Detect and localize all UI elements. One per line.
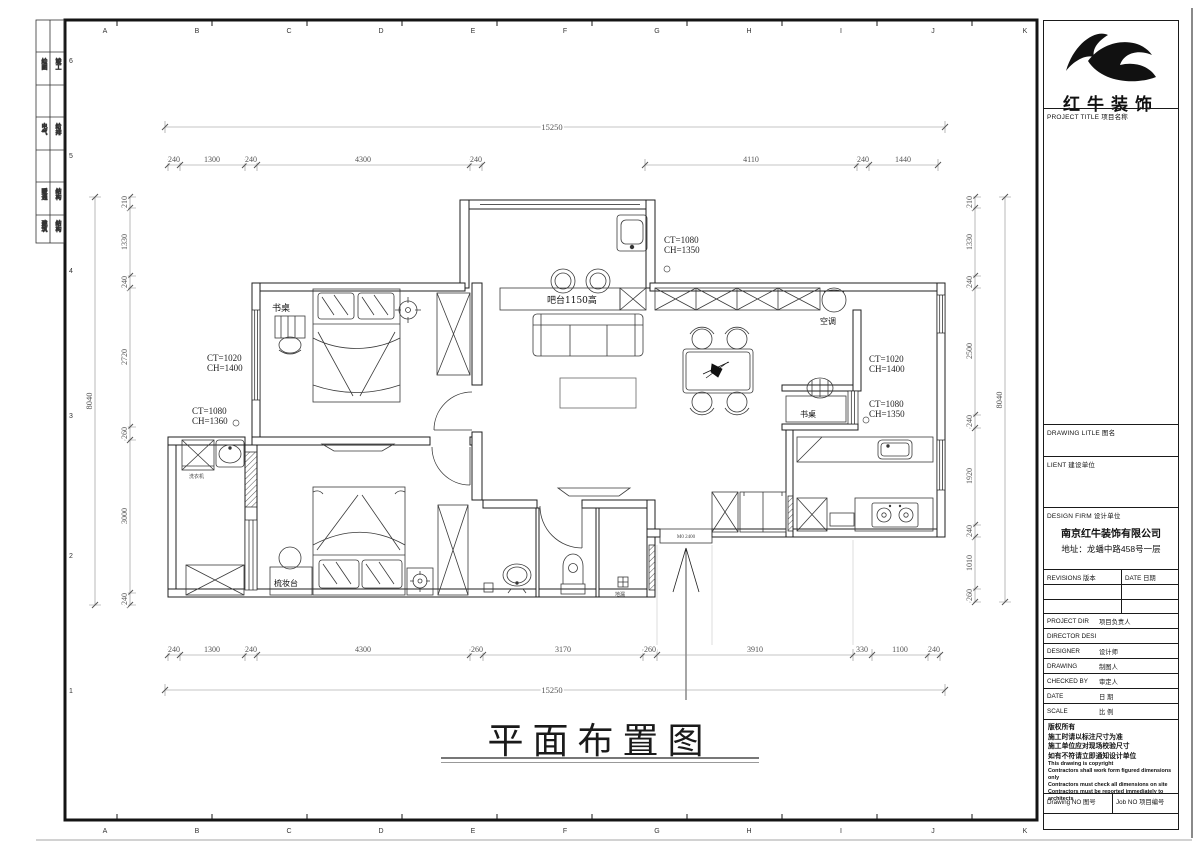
svg-text:暖通: 暖通 [40, 187, 47, 201]
desk-bedroom1 [275, 316, 305, 354]
row-checked-by: CHECKED BY审定人 [1044, 673, 1178, 689]
svg-text:C: C [286, 828, 291, 835]
room-labels: 书桌 吧台1150高 空调 书桌 梳妆台 洗衣机 地漏 M0 2400 [189, 294, 836, 598]
svg-text:结构: 结构 [54, 187, 61, 201]
svg-text:CH=1360: CH=1360 [192, 416, 228, 426]
svg-text:2720: 2720 [120, 349, 129, 365]
dim-bottom-total: 15250 [541, 685, 562, 695]
title-underline-2 [441, 762, 759, 763]
row-director: DIRECTOR DESI [1044, 628, 1178, 644]
svg-text:C: C [286, 28, 291, 35]
svg-text:CT=1080: CT=1080 [869, 399, 904, 409]
svg-text:CT=1080: CT=1080 [664, 235, 699, 245]
ruler-letter: A [103, 28, 108, 35]
svg-text:3: 3 [69, 413, 73, 420]
svg-text:J: J [931, 28, 935, 35]
svg-text:6: 6 [69, 58, 73, 65]
svg-text:4300: 4300 [355, 645, 371, 654]
svg-text:CT=1080: CT=1080 [192, 406, 227, 416]
svg-text:CT=1020: CT=1020 [869, 354, 904, 364]
label-floor-drain: 地漏 [615, 591, 625, 598]
dim-top-total: 15250 [541, 122, 562, 132]
door-bedroom2 [432, 447, 470, 485]
svg-text:240: 240 [965, 525, 974, 537]
svg-text:电气: 电气 [40, 122, 47, 135]
svg-text:240: 240 [245, 155, 257, 164]
revisions-label: REVISIONS 版本 [1047, 573, 1096, 582]
design-firm-label: DESIGN FIRM 设计单位 [1044, 508, 1178, 520]
label-entry-mark: M0 2400 [677, 535, 696, 540]
svg-text:CH=1400: CH=1400 [207, 363, 243, 373]
svg-text:260: 260 [471, 645, 483, 654]
svg-text:240: 240 [928, 645, 940, 654]
svg-text:结构: 结构 [54, 219, 61, 233]
svg-text:1330: 1330 [120, 234, 129, 250]
svg-text:2: 2 [69, 553, 73, 560]
svg-text:I: I [840, 828, 842, 835]
svg-text:3910: 3910 [747, 645, 763, 654]
svg-text:1100: 1100 [892, 645, 908, 654]
table-centerpiece [703, 362, 729, 378]
kitchen-pier-hatch [788, 496, 793, 531]
svg-text:260: 260 [644, 645, 656, 654]
margin-strip: 绘图 竣工 电气 给排 暖通 结构 建筑 结构 [36, 20, 64, 243]
svg-text:1920: 1920 [965, 468, 974, 484]
svg-text:1010: 1010 [965, 555, 974, 571]
row-project-dir: PROJECT DIR项目负责人 [1044, 613, 1178, 629]
title-block: 红牛装饰 PROJECT TITLE 项目名称 DRAWING LITLE 图名… [1043, 20, 1179, 830]
svg-text:240: 240 [120, 593, 129, 605]
title-underline [441, 757, 759, 759]
toilet [561, 554, 585, 594]
svg-text:240: 240 [168, 645, 180, 654]
svg-text:260: 260 [965, 589, 974, 601]
wardrobe-bedroom2 [438, 505, 468, 595]
svg-text:建筑: 建筑 [40, 219, 47, 233]
dining-chair [725, 392, 749, 415]
svg-text:3170: 3170 [555, 645, 571, 654]
svg-text:1: 1 [69, 688, 73, 695]
logo-area: 红牛装饰 [1044, 21, 1178, 108]
margin-cell-text: 绘图 [40, 57, 47, 71]
svg-text:240: 240 [168, 155, 180, 164]
svg-text:E: E [471, 28, 476, 35]
wardrobe-bedroom1 [437, 293, 470, 375]
firm-address: 地址：龙蟠中路458号一层 [1044, 543, 1178, 555]
svg-text:B: B [195, 28, 200, 35]
label-desk-study: 书桌 [800, 409, 816, 419]
svg-text:H: H [746, 828, 751, 835]
svg-text:3000: 3000 [120, 508, 129, 524]
entry-pier-hatch [649, 545, 655, 590]
svg-text:1300: 1300 [204, 155, 220, 164]
svg-text:K: K [1023, 828, 1028, 835]
window-kitchen-east [937, 440, 945, 490]
svg-text:竣工: 竣工 [54, 57, 61, 70]
svg-text:210: 210 [965, 196, 974, 208]
drawing-title-label: DRAWING LITLE 图名 [1044, 424, 1178, 439]
svg-text:330: 330 [856, 645, 868, 654]
sink-bay [617, 215, 647, 251]
svg-text:F: F [563, 28, 567, 35]
bed-double-bedroom2 [313, 487, 405, 595]
design-firm-section: DESIGN FIRM 设计单位 南京红牛装饰有限公司 地址：龙蟠中路458号一… [1044, 507, 1178, 570]
air-conditioner [822, 288, 846, 312]
svg-text:1330: 1330 [965, 234, 974, 250]
dining-chair [725, 327, 749, 349]
floor-plan-sheet: A B C D E F G H I J K A B C D E F G H I … [0, 0, 1200, 844]
drawing-no-label: Drawing NO 图号 [1047, 797, 1096, 806]
svg-text:260: 260 [120, 427, 129, 439]
dining-table [683, 327, 753, 415]
row-drawing: DRAWING制图人 [1044, 658, 1178, 674]
firm-name: 南京红牛装饰有限公司 [1044, 525, 1178, 540]
window-living-east [937, 295, 945, 333]
entry-arrow [673, 548, 699, 700]
svg-text:240: 240 [470, 155, 482, 164]
label-desk-bedroom: 书桌 [272, 302, 290, 314]
svg-text:F: F [563, 828, 567, 835]
label-bar: 吧台1150高 [547, 294, 597, 306]
svg-text:4110: 4110 [743, 155, 759, 164]
svg-text:H: H [746, 28, 751, 35]
svg-text:240: 240 [245, 645, 257, 654]
door-bathroom [540, 506, 582, 548]
svg-text:240: 240 [120, 276, 129, 288]
svg-text:240: 240 [965, 415, 974, 427]
title-block-footer [1044, 813, 1178, 830]
svg-text:G: G [654, 28, 659, 35]
label-dresser: 梳妆台 [274, 578, 298, 588]
row-designer: DESIGNER设计师 [1044, 643, 1178, 659]
walls [168, 200, 945, 597]
svg-text:240: 240 [965, 276, 974, 288]
shower-drain [618, 577, 628, 587]
door-bedroom1 [434, 392, 472, 430]
svg-text:K: K [1023, 28, 1028, 35]
refrigerator [740, 492, 786, 532]
svg-text:G: G [654, 828, 659, 835]
svg-text:CH=1400: CH=1400 [869, 364, 905, 374]
window-bedroom1-west [252, 310, 260, 400]
job-no-label: Job NO 项目编号 [1116, 797, 1164, 806]
gas-stove [872, 503, 918, 527]
project-title-label: PROJECT TITLE 项目名称 [1044, 108, 1178, 123]
svg-text:J: J [931, 828, 935, 835]
copyright-block: 版权所有 施工时请以标注尺寸为准 施工单位应对现场校验尺寸 如有不符请立即通知设… [1044, 719, 1178, 794]
date-col-label: DATE 日期 [1125, 573, 1156, 582]
row-date: DATE日 期 [1044, 688, 1178, 704]
revision-row [1044, 599, 1178, 614]
ceiling-light-bar-bathroom [558, 488, 630, 496]
window-tag: CT=1020 [207, 353, 242, 363]
svg-text:B: B [195, 828, 200, 835]
window-study [848, 391, 858, 424]
svg-text:2500: 2500 [965, 343, 974, 359]
label-washer: 洗衣机 [189, 473, 204, 480]
svg-text:CH=1350: CH=1350 [664, 245, 700, 255]
dining-chair [690, 327, 714, 349]
svg-text:I: I [840, 28, 842, 35]
row-scale: SCALE比 例 [1044, 703, 1178, 719]
dining-chair [690, 392, 714, 415]
bed-double-bedroom1 [313, 289, 400, 402]
svg-text:210: 210 [120, 196, 129, 208]
revisions-header: REVISIONS 版本 DATE 日期 [1044, 569, 1178, 585]
ceiling-lamp-bedroom1 [395, 297, 421, 323]
svg-text:4: 4 [69, 268, 73, 275]
svg-text:8040: 8040 [994, 392, 1004, 409]
svg-text:D: D [378, 28, 383, 35]
svg-text:1440: 1440 [895, 155, 911, 164]
svg-text:5: 5 [69, 153, 73, 160]
rednow-logo-icon [1044, 21, 1176, 83]
svg-text:1300: 1300 [204, 645, 220, 654]
kitchen-base-cabinet [797, 498, 854, 531]
svg-text:8040: 8040 [84, 393, 94, 410]
svg-text:D: D [378, 828, 383, 835]
client-label: LIENT 建设单位 [1044, 456, 1178, 471]
svg-text:E: E [471, 828, 476, 835]
window-tags: CT=1020 CH=1400 CT=1080 CH=1360 CT=1080 … [192, 235, 905, 426]
label-ac: 空调 [820, 316, 836, 326]
svg-text:A: A [103, 828, 108, 835]
sofa [533, 314, 643, 356]
svg-text:给排: 给排 [54, 122, 61, 136]
cabinet-entry [712, 492, 738, 532]
rug [560, 378, 636, 408]
revision-row [1044, 584, 1178, 599]
svg-text:4300: 4300 [355, 155, 371, 164]
wall-pier-hatch [245, 452, 257, 507]
drawing-no-row: Drawing NO 图号 Job NO 项目编号 [1044, 793, 1178, 814]
window-bedroom2-west [245, 520, 257, 590]
svg-text:240: 240 [857, 155, 869, 164]
svg-text:CH=1350: CH=1350 [869, 409, 905, 419]
kitchen-sink [878, 440, 912, 459]
